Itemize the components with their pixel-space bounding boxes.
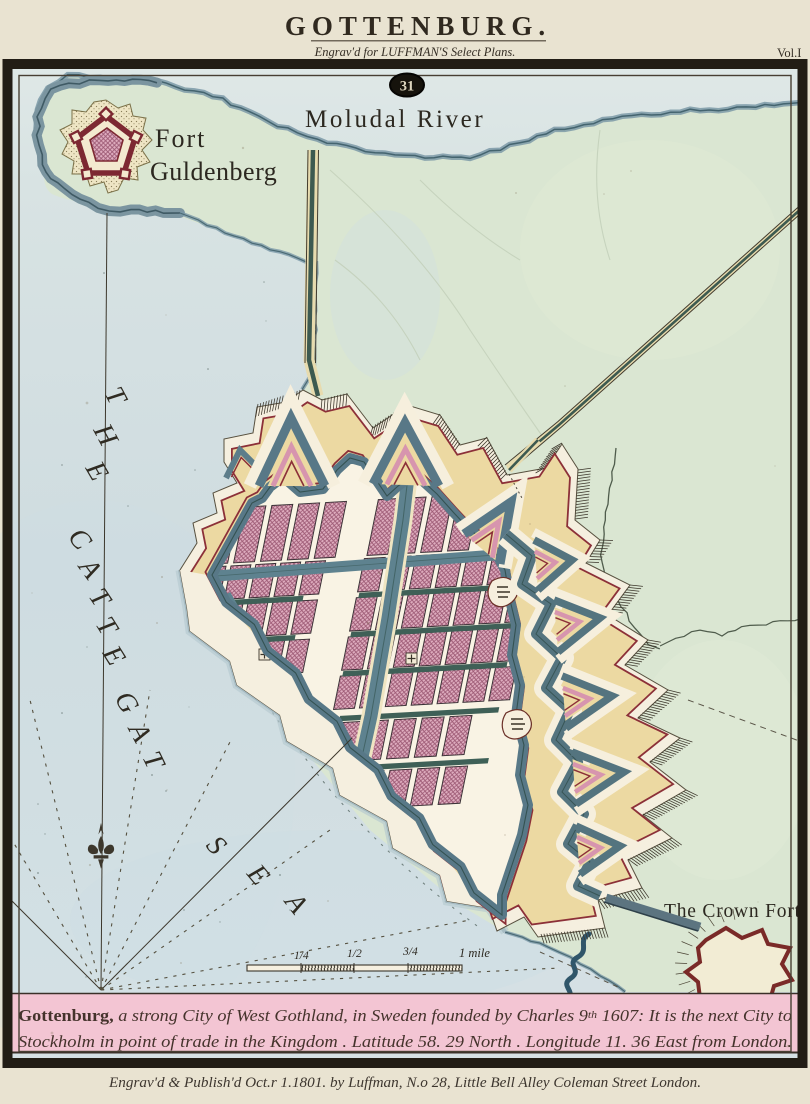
svg-text:1/4: 1/4 (294, 950, 309, 962)
svg-text:Engrav'd & Publish'd Oct.r 1.1: Engrav'd & Publish'd Oct.r 1.1801. by Lu… (108, 1075, 701, 1091)
svg-text:Stockholm in point of trade in: Stockholm in point of trade in the Kingd… (18, 1032, 792, 1051)
svg-text:3/4: 3/4 (402, 946, 418, 958)
svg-text:Fort: Fort (155, 124, 206, 153)
svg-text:Guldenberg: Guldenberg (150, 157, 277, 186)
svg-text:Vol.I: Vol.I (777, 46, 801, 60)
svg-text:Gottenburg, a strong City of W: Gottenburg, a strong City of West Gothla… (18, 1006, 792, 1025)
svg-text:Moludal River: Moludal River (305, 106, 485, 133)
svg-text:1 mile: 1 mile (459, 946, 490, 960)
svg-text:Engrav'd for LUFFMAN'S Select: Engrav'd for LUFFMAN'S Select Plans. (314, 45, 516, 59)
svg-text:GOTTENBURG.: GOTTENBURG. (285, 11, 551, 41)
svg-text:1/2: 1/2 (347, 948, 362, 960)
svg-text:31: 31 (400, 79, 415, 95)
